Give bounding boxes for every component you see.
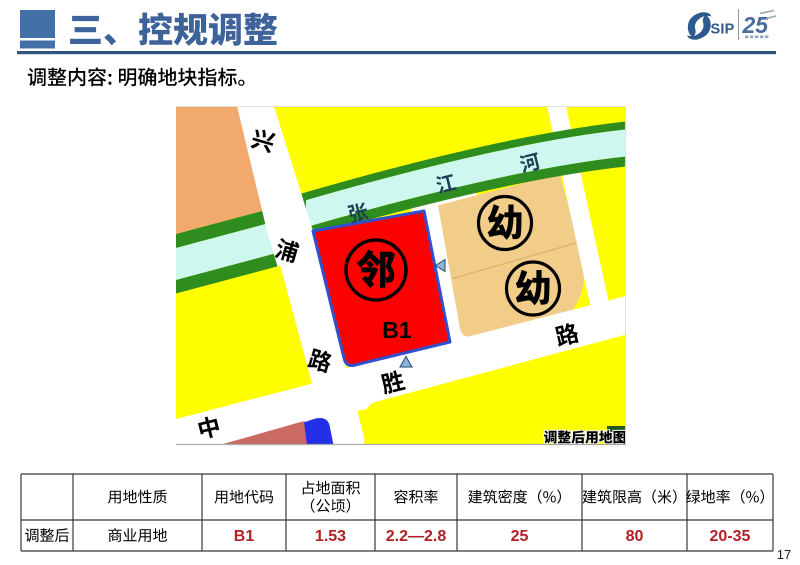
svg-text:2.2—2.8: 2.2—2.8 (386, 528, 447, 545)
svg-text:20-35: 20-35 (710, 528, 751, 545)
svg-text:1.53: 1.53 (315, 528, 346, 545)
svg-text:SIP: SIP (711, 22, 735, 38)
svg-text:B1: B1 (382, 317, 412, 343)
svg-text:25: 25 (511, 528, 529, 545)
svg-text:17: 17 (777, 547, 791, 562)
svg-text:B1: B1 (234, 528, 255, 545)
svg-text:80: 80 (626, 528, 644, 545)
svg-text:25: 25 (742, 12, 770, 38)
